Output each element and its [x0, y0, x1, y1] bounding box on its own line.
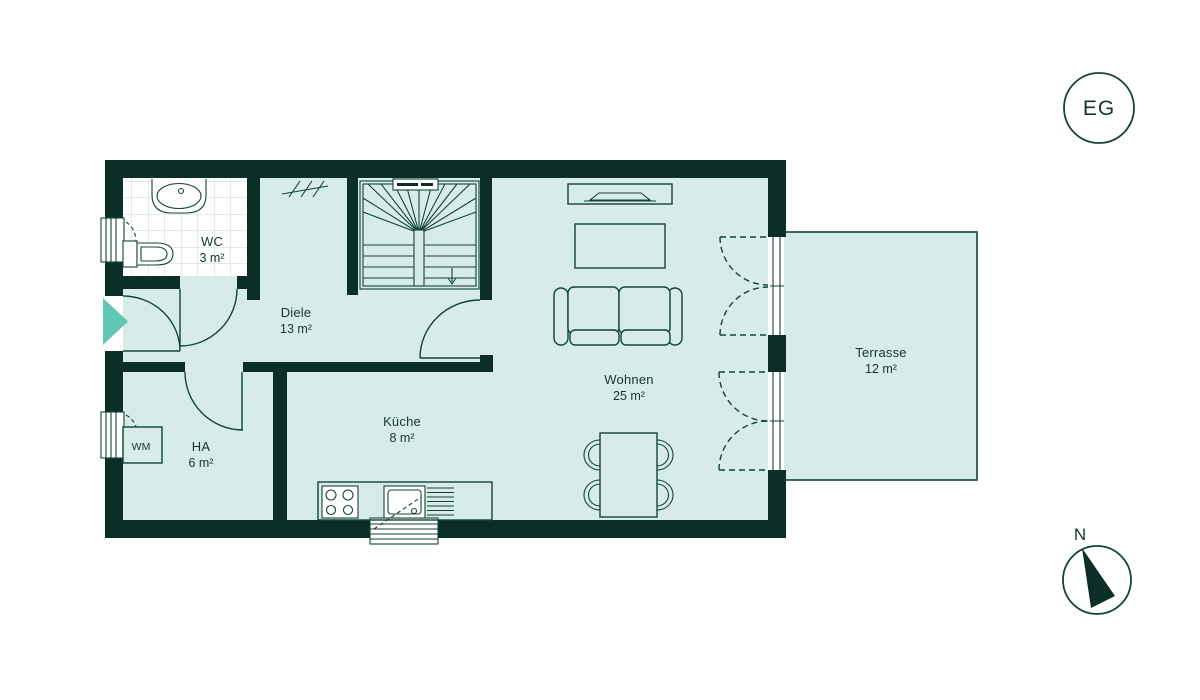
wc-toilet [123, 241, 173, 267]
room-label-ha: HA [192, 439, 211, 454]
room-label-wc: WC [201, 234, 223, 249]
wc-sink [152, 179, 206, 213]
room-area-ha: 6 m² [189, 456, 214, 470]
glass-door-upper [770, 237, 784, 335]
room-label-diele: Diele [281, 305, 312, 320]
stove [322, 486, 358, 518]
washing-machine-label: WM [132, 441, 151, 453]
floor-plan-svg: WC 3 m² Diele 13 m² HA 6 m² Küche 8 m² W… [0, 0, 1200, 700]
room-area-wc: 3 m² [200, 251, 225, 265]
dining-table [600, 433, 657, 517]
room-label-terrasse: Terrasse [855, 345, 906, 360]
floor-level-badge: EG [1064, 73, 1134, 143]
room-area-diele: 13 m² [280, 322, 312, 336]
sofa [554, 287, 682, 345]
room-label-wohnen: Wohnen [604, 372, 653, 387]
floor-plan-page: WC 3 m² Diele 13 m² HA 6 m² Küche 8 m² W… [0, 0, 1200, 700]
north-label: N [1074, 525, 1086, 544]
window-kitchen [370, 518, 438, 544]
room-area-wohnen: 25 m² [613, 389, 645, 403]
compass-needle-icon [1082, 548, 1115, 608]
north-compass: N [1063, 525, 1131, 614]
room-label-kueche: Küche [383, 414, 421, 429]
glass-door-lower [770, 372, 784, 470]
room-area-kueche: 8 m² [390, 431, 415, 445]
room-area-terrasse: 12 m² [865, 362, 897, 376]
stairs-label-box [393, 179, 438, 190]
floor-level-badge-label: EG [1083, 97, 1115, 120]
